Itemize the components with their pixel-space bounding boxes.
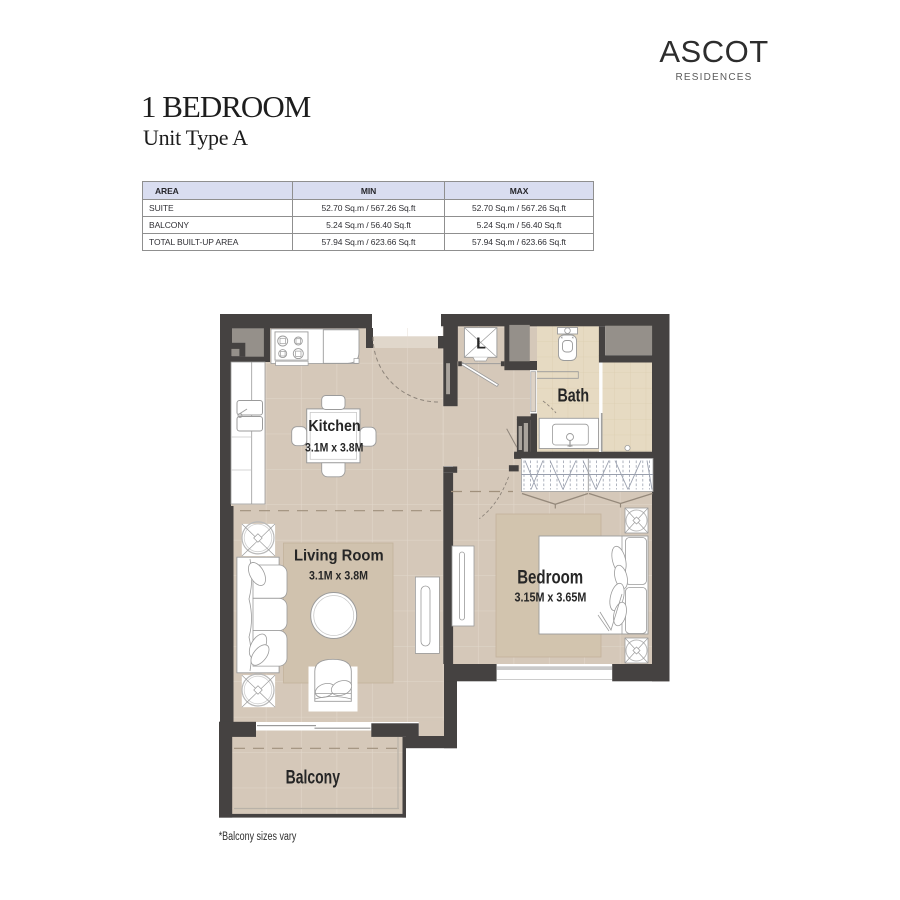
svg-text:3.15M x 3.65M: 3.15M x 3.65M [515, 590, 587, 605]
svg-text:Kitchen: Kitchen [308, 418, 360, 435]
svg-text:Balcony: Balcony [286, 767, 341, 788]
svg-text:3.1M x 3.8M: 3.1M x 3.8M [309, 570, 368, 582]
svg-text:Living Room: Living Room [294, 548, 384, 565]
svg-text:Bedroom: Bedroom [517, 568, 583, 589]
svg-text:*Balcony sizes vary: *Balcony sizes vary [219, 831, 297, 843]
svg-text:L: L [476, 335, 486, 352]
svg-text:Bath: Bath [557, 386, 589, 406]
svg-text:3.1M x 3.8M: 3.1M x 3.8M [305, 443, 363, 455]
